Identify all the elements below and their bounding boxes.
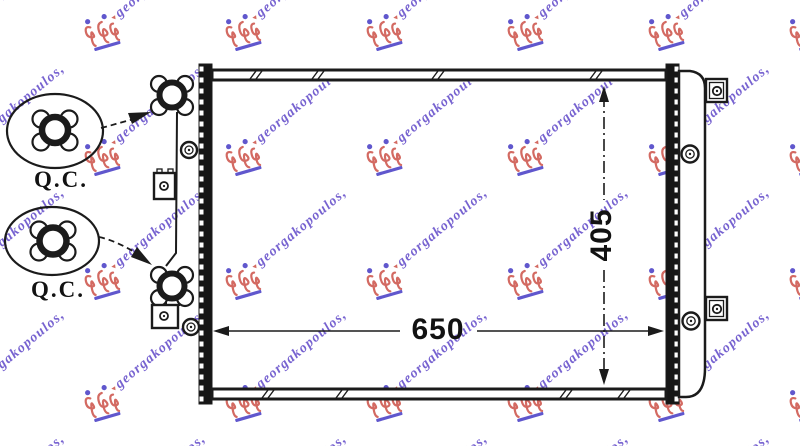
qc-callout-top: [7, 94, 151, 168]
radiator-line-drawing: [0, 0, 800, 446]
bolt-boss-bottom-right: [683, 313, 700, 330]
mounting-bracket-top-left: [154, 169, 175, 199]
qc-label-top: Q.C.: [21, 167, 101, 193]
mounting-bracket-bottom-right: [706, 297, 727, 320]
left-fin-strip: [199, 64, 212, 404]
radiator-catalog-image: georgakopoulos, georgakopoulos, georgako…: [0, 0, 800, 446]
right-tank-body: [679, 71, 705, 397]
mounting-bracket-bottom-left: [152, 305, 178, 328]
height-dimension-value: 405: [582, 205, 622, 265]
outlet-port-bottom: [151, 267, 193, 306]
qc-label-bottom: Q.C.: [18, 277, 98, 303]
bolt-boss-top-right: [682, 146, 699, 163]
callout-arrowhead-bottom: [131, 247, 152, 265]
qc-callout-bottom: [5, 207, 152, 275]
callout-leader-bottom: [99, 237, 138, 254]
plate-hatch-marks: [250, 71, 630, 398]
width-dimension-value: 650: [403, 313, 473, 347]
right-fin-strip: [666, 64, 679, 404]
bolt-boss-bottom-left: [183, 319, 199, 335]
callout-leader-top: [101, 119, 134, 128]
core-bottom-plate: [212, 389, 666, 399]
left-side-fittings: [151, 76, 199, 335]
callout-arrowhead-top: [128, 112, 151, 124]
inlet-port-top: [151, 76, 193, 115]
bolt-boss-top-left: [181, 142, 197, 158]
mounting-bracket-top-right: [706, 79, 727, 102]
right-tank: [679, 71, 727, 397]
